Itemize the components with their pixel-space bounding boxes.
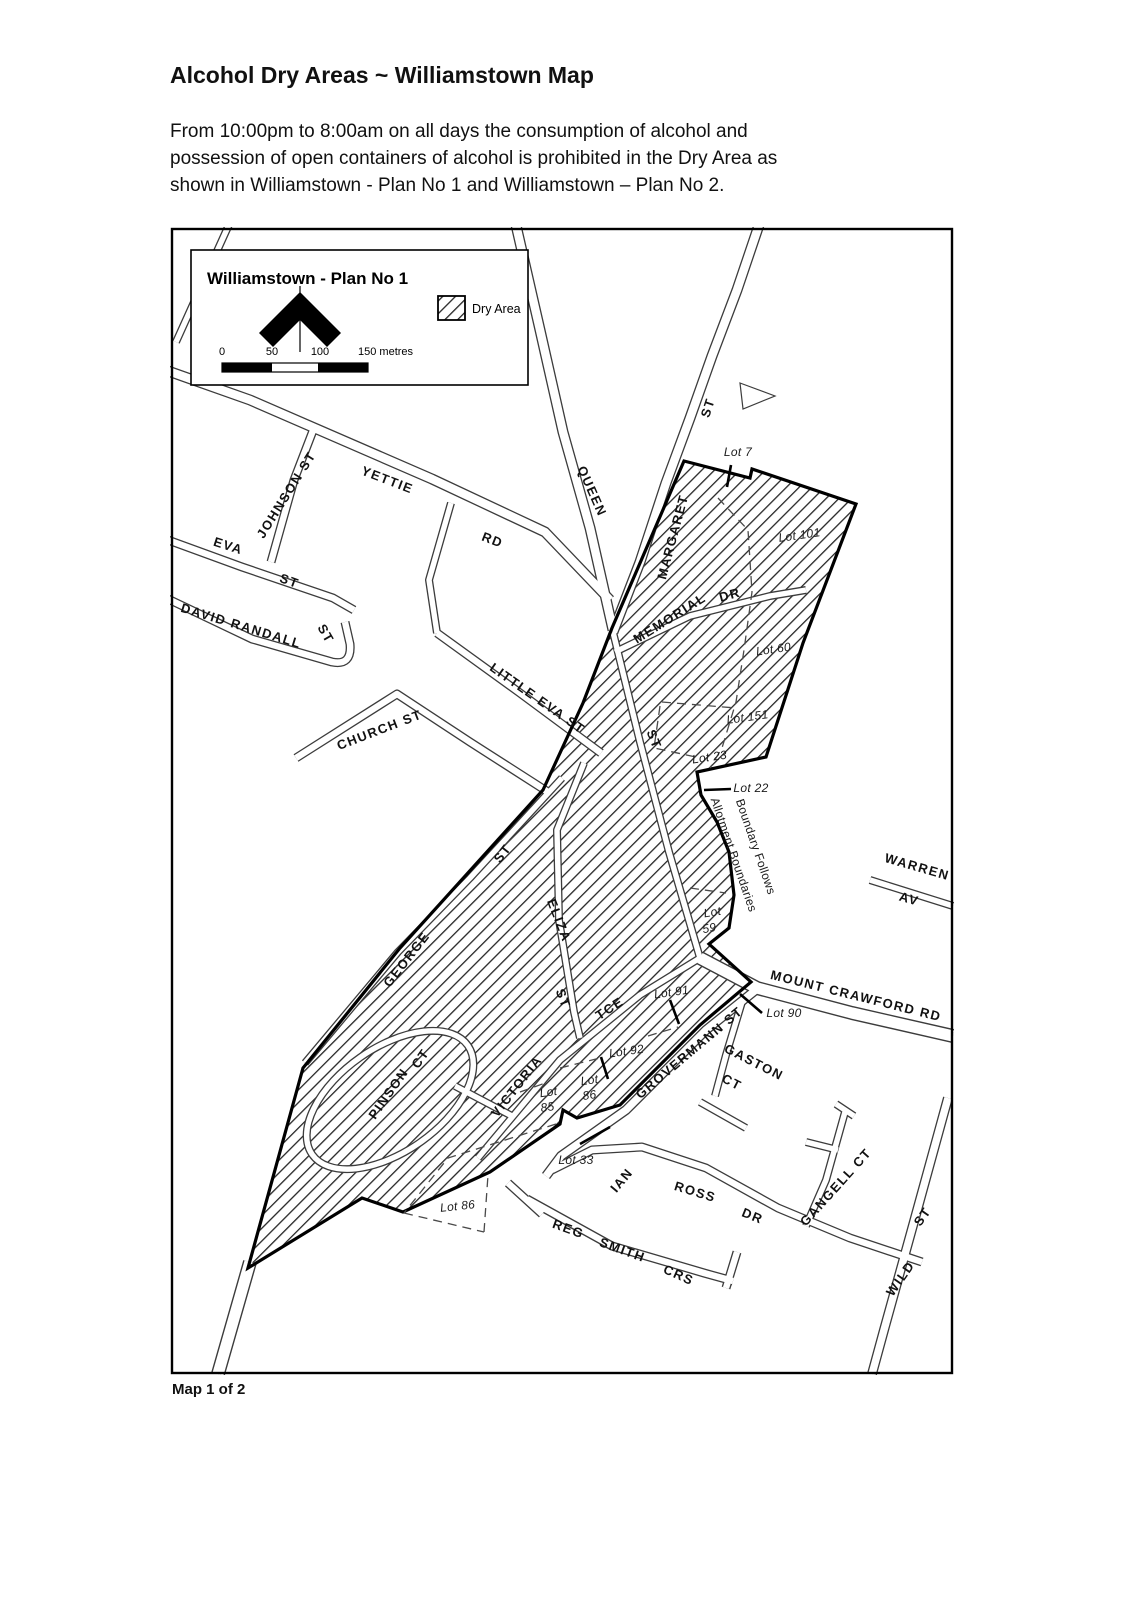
- intro-paragraph: From 10:00pm to 8:00am on all days the c…: [170, 118, 930, 199]
- lot-label-90: Lot 90: [766, 1006, 801, 1020]
- plan-title: Williamstown - Plan No 1: [207, 269, 408, 288]
- street-label-warren: WARREN: [883, 850, 951, 883]
- lot-label-59-line2: 59: [701, 920, 717, 936]
- lot-label-85-line2: 85: [540, 1099, 556, 1115]
- street-label-johnson-st: JOHNSON ST: [253, 448, 318, 540]
- map-frame: JOHNSON ST YETTIE RD EVA ST DAVID RANDAL…: [170, 227, 954, 1375]
- scale-tick-150: 150 metres: [358, 346, 414, 358]
- lot-label-86-upper-line1: Lot: [580, 1072, 600, 1088]
- dry-area-swatch-icon: [438, 296, 465, 320]
- scale-tick-50: 50: [266, 346, 278, 358]
- street-label-ian-ross-dr: DR: [740, 1205, 766, 1227]
- map-caption: Map 1 of 2: [172, 1381, 245, 1398]
- legend-dry-area-label: Dry Area: [472, 302, 521, 316]
- lot-label-33: Lot 33: [558, 1153, 593, 1167]
- street-label-david-randall-st: ST: [314, 622, 337, 646]
- lot-label-86-upper-line2: 86: [582, 1087, 598, 1103]
- scale-tick-100: 100: [311, 346, 329, 358]
- street-label-smith: SMITH: [597, 1235, 647, 1265]
- street-label-reg: REG: [551, 1216, 587, 1241]
- street-label-david-randall: DAVID RANDALL: [179, 600, 303, 651]
- street-label-ross: ROSS: [673, 1178, 718, 1205]
- intro-line-1: From 10:00pm to 8:00am on all days the c…: [170, 118, 930, 145]
- street-label-yettie-rd: RD: [480, 529, 506, 551]
- map-canvas: JOHNSON ST YETTIE RD EVA ST DAVID RANDAL…: [170, 227, 954, 1375]
- intro-line-2: possession of open containers of alcohol…: [170, 145, 930, 172]
- page-title: Alcohol Dry Areas ~ Williamstown Map: [170, 62, 594, 89]
- document-page: Alcohol Dry Areas ~ Williamstown Map Fro…: [0, 0, 1131, 1600]
- lot-label-86-lower: Lot 86: [439, 1197, 475, 1215]
- scale-tick-0: 0: [219, 346, 225, 358]
- street-label-little-eva-st: LITTLE EVA ST: [487, 660, 588, 737]
- map-title-box: Williamstown - Plan No 1 0 50 100 150 me…: [191, 250, 528, 385]
- road-wedge-stub: [740, 383, 775, 409]
- lot-label-7: Lot 7: [724, 445, 753, 459]
- lot-label-22: Lot 22: [733, 781, 768, 795]
- scale-bar-segment-1: [222, 363, 272, 372]
- intro-line-3: shown in Williamstown - Plan No 1 and Wi…: [170, 172, 930, 199]
- scale-bar-segment-2: [318, 363, 368, 372]
- street-label-ian: IAN: [607, 1165, 636, 1195]
- lot-label-85-line1: Lot: [539, 1084, 559, 1100]
- street-label-wild: WILD: [883, 1258, 918, 1299]
